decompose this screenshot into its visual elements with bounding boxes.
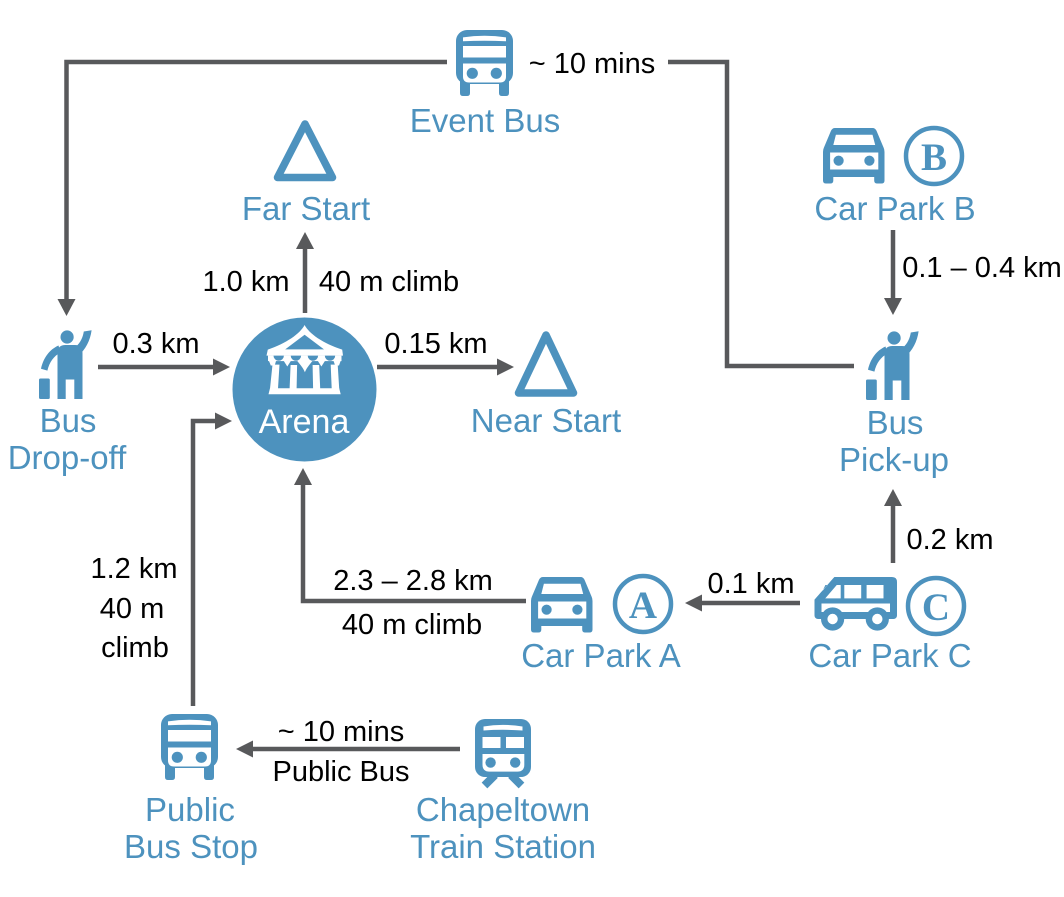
svg-text:1.0 km: 1.0 km (202, 266, 289, 298)
svg-text:Chapeltown: Chapeltown (416, 791, 590, 828)
svg-text:B: B (921, 136, 947, 179)
svg-text:1.2 km: 1.2 km (90, 553, 177, 585)
svg-text:Car Park C: Car Park C (808, 637, 971, 674)
svg-text:Public Bus: Public Bus (272, 756, 409, 788)
svg-text:Bus: Bus (867, 404, 924, 441)
svg-text:Bus Stop: Bus Stop (124, 828, 258, 865)
svg-text:0.1 km: 0.1 km (707, 568, 794, 600)
svg-text:Car Park B: Car Park B (814, 190, 975, 227)
svg-text:Event Bus: Event Bus (410, 102, 560, 139)
svg-text:~ 10 mins: ~ 10 mins (529, 48, 656, 80)
svg-text:Far Start: Far Start (242, 190, 370, 227)
svg-text:~ 10 mins: ~ 10 mins (278, 716, 405, 748)
svg-text:Train Station: Train Station (410, 828, 596, 865)
svg-text:0.15 km: 0.15 km (384, 328, 487, 360)
svg-text:0.3 km: 0.3 km (112, 328, 199, 360)
svg-text:Near Start: Near Start (471, 402, 621, 439)
svg-text:Bus: Bus (40, 402, 97, 439)
svg-text:A: A (629, 584, 657, 627)
svg-text:C: C (922, 586, 950, 629)
svg-text:40 m: 40 m (100, 593, 164, 625)
svg-text:Public: Public (145, 791, 235, 828)
svg-text:climb: climb (101, 632, 169, 664)
svg-text:0.2 km: 0.2 km (906, 524, 993, 556)
svg-text:Drop-off: Drop-off (8, 439, 127, 476)
svg-text:0.1 – 0.4 km: 0.1 – 0.4 km (902, 252, 1062, 284)
svg-text:2.3 – 2.8 km: 2.3 – 2.8 km (333, 565, 493, 597)
svg-text:Arena: Arena (259, 403, 350, 441)
svg-text:40 m climb: 40 m climb (342, 609, 482, 641)
svg-text:Car Park A: Car Park A (521, 637, 681, 674)
svg-text:Pick-up: Pick-up (839, 441, 949, 478)
svg-text:40 m climb: 40 m climb (319, 266, 459, 298)
